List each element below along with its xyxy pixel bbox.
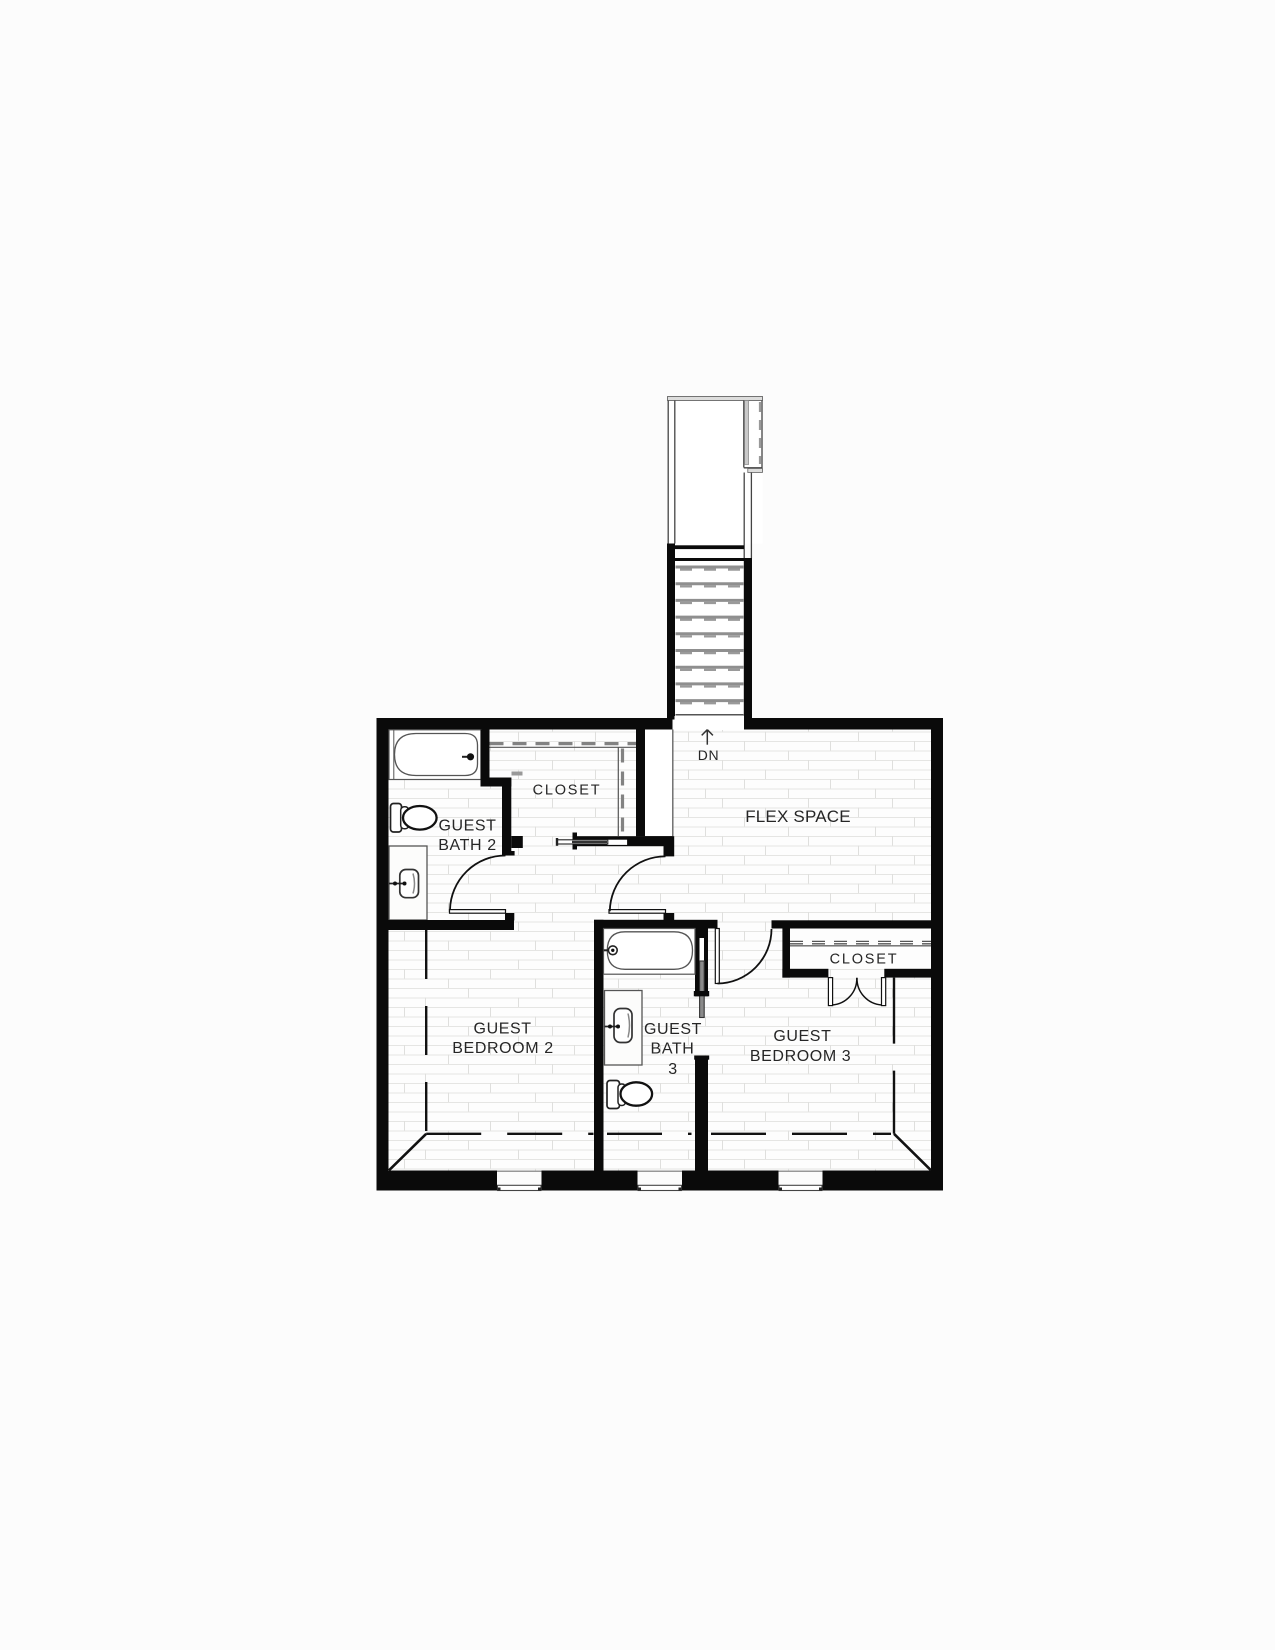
svg-text:GUEST: GUEST — [474, 1021, 532, 1038]
svg-text:GUEST: GUEST — [644, 1021, 702, 1038]
svg-text:3: 3 — [668, 1061, 678, 1078]
svg-text:CLOSET: CLOSET — [533, 783, 602, 799]
svg-text:GUEST: GUEST — [438, 818, 496, 835]
svg-text:BATH: BATH — [651, 1041, 695, 1058]
svg-text:GUEST: GUEST — [773, 1028, 831, 1045]
svg-text:BEDROOM 2: BEDROOM 2 — [452, 1040, 553, 1057]
svg-text:CLOSET: CLOSET — [830, 952, 899, 968]
svg-text:DN: DN — [698, 747, 719, 763]
svg-text:FLEX SPACE: FLEX SPACE — [745, 807, 851, 826]
svg-text:BATH 2: BATH 2 — [438, 837, 496, 854]
svg-text:BEDROOM 3: BEDROOM 3 — [750, 1048, 851, 1065]
